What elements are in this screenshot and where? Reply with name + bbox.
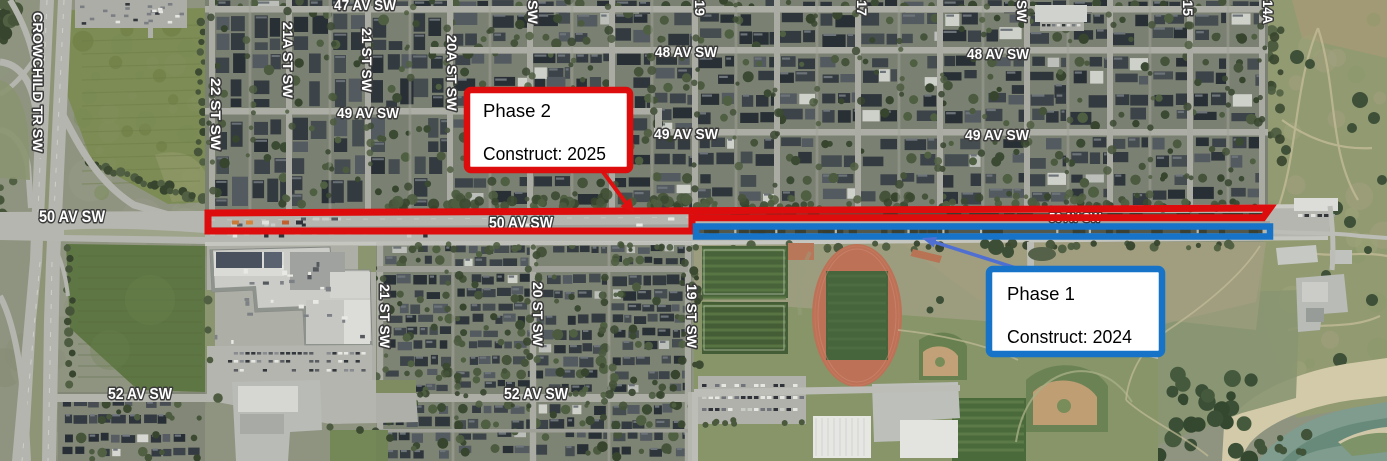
svg-text:49 AV SW: 49 AV SW — [965, 127, 1030, 144]
svg-text:52 AV SW: 52 AV SW — [504, 386, 569, 403]
svg-text:21A ST SW: 21A ST SW — [280, 22, 296, 99]
svg-text:49 AV SW: 49 AV SW — [654, 126, 719, 143]
svg-text:SW: SW — [1014, 0, 1030, 23]
svg-text:20 ST SW: 20 ST SW — [530, 282, 546, 347]
svg-text:15: 15 — [1180, 0, 1196, 16]
svg-text:47 AV SW: 47 AV SW — [334, 0, 397, 14]
svg-text:22 ST SW: 22 ST SW — [208, 78, 224, 151]
svg-text:SW: SW — [525, 0, 541, 25]
svg-text:17: 17 — [854, 0, 870, 16]
svg-text:52 AV SW: 52 AV SW — [108, 386, 173, 403]
svg-text:21 ST SW: 21 ST SW — [359, 28, 375, 93]
svg-text:14A: 14A — [1260, 0, 1276, 24]
svg-text:CROWCHILD TR SW: CROWCHILD TR SW — [30, 12, 46, 153]
svg-text:50 AV SW: 50 AV SW — [39, 207, 106, 226]
svg-text:Phase 2: Phase 2 — [483, 100, 551, 121]
svg-text:48 AV SW: 48 AV SW — [967, 46, 1030, 63]
svg-text:49 AV SW: 49 AV SW — [337, 105, 400, 122]
svg-text:Phase 1: Phase 1 — [1007, 283, 1075, 304]
svg-text:Construct: 2024: Construct: 2024 — [1007, 326, 1132, 347]
svg-text:20A ST SW: 20A ST SW — [444, 35, 460, 112]
svg-text:19: 19 — [692, 0, 708, 16]
svg-text:48 AV SW: 48 AV SW — [655, 44, 718, 61]
svg-text:19 ST SW: 19 ST SW — [684, 284, 700, 349]
svg-text:Construct: 2025: Construct: 2025 — [483, 143, 606, 164]
svg-text:21 ST SW: 21 ST SW — [377, 284, 393, 349]
